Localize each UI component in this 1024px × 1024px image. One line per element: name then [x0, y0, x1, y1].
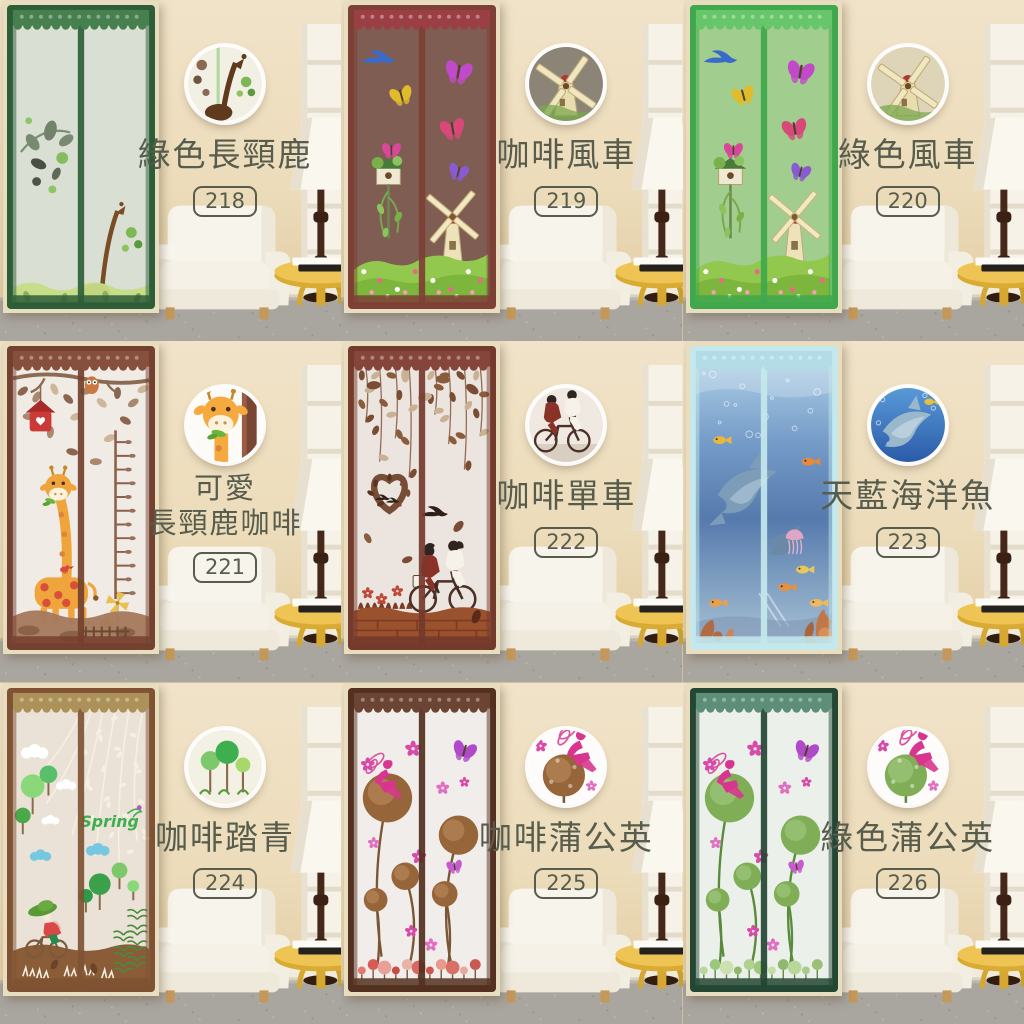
product-name-line: 可愛 — [147, 471, 302, 506]
product-thumbnail-badge — [528, 46, 604, 122]
product-code-badge: 220 — [876, 186, 940, 217]
product-code: 223 — [888, 530, 928, 554]
product-cell: 綠色長頸鹿 218 — [0, 0, 341, 341]
product-name-line: 咖啡踏青 — [155, 818, 295, 858]
product-info: 可愛長頸鹿咖啡 221 — [118, 387, 332, 583]
product-code-badge: 225 — [534, 868, 598, 899]
product-name-line: 綠色蒲公英 — [820, 818, 995, 858]
dolphin-icon — [870, 387, 946, 463]
product-code: 226 — [888, 871, 928, 895]
windmill-icon — [528, 46, 604, 122]
product-info: 咖啡風車 219 — [459, 46, 673, 217]
product-thumbnail-badge — [870, 729, 946, 805]
catalog-grid: 綠色長頸鹿 218 — [0, 0, 1024, 1024]
product-name: 咖啡風車 — [496, 135, 636, 175]
product-thumbnail-badge — [870, 387, 946, 463]
product-thumbnail-badge — [870, 46, 946, 122]
product-code: 221 — [205, 555, 245, 579]
product-info: 咖啡蒲公英 225 — [459, 729, 673, 900]
product-name-line: 長頸鹿咖啡 — [147, 506, 302, 541]
product-cell: 咖啡單車 222 — [341, 341, 682, 682]
product-cell: 綠色蒲公英 226 — [683, 683, 1024, 1024]
product-cell: Spring 咖啡踏青 224 — [0, 683, 341, 1024]
product-code: 219 — [546, 189, 586, 213]
product-name: 咖啡單車 — [496, 476, 636, 516]
dandelion-fairy-icon — [528, 729, 604, 805]
product-code: 224 — [205, 871, 245, 895]
product-name: 綠色風車 — [838, 135, 978, 175]
product-code-badge: 226 — [876, 868, 940, 899]
product-cell: 咖啡風車 219 — [341, 0, 682, 341]
product-cell: 綠色風車 220 — [683, 0, 1024, 341]
product-cell: 咖啡蒲公英 225 — [341, 683, 682, 1024]
product-code-badge: 224 — [193, 868, 257, 899]
product-code-badge: 222 — [534, 527, 598, 558]
product-thumbnail-badge — [528, 387, 604, 463]
product-info: 咖啡踏青 224 — [118, 729, 332, 900]
product-name: 綠色蒲公英 — [820, 818, 995, 858]
product-info: 咖啡單車 222 — [459, 387, 673, 558]
product-code: 218 — [205, 189, 245, 213]
product-info: 綠色長頸鹿 218 — [118, 46, 332, 217]
product-name-line: 咖啡單車 — [496, 476, 636, 516]
product-name: 咖啡蒲公英 — [479, 818, 654, 858]
bicycle-couple-icon — [528, 387, 604, 463]
product-thumbnail-badge — [187, 387, 263, 463]
cartoon-giraffe-icon — [187, 387, 263, 463]
trees-icon — [187, 729, 263, 805]
dandelion-fairy-icon — [870, 729, 946, 805]
product-name-line: 綠色長頸鹿 — [138, 135, 313, 175]
product-info: 天藍海洋魚 223 — [801, 387, 1015, 558]
product-name: 咖啡踏青 — [155, 818, 295, 858]
product-thumbnail-badge — [187, 46, 263, 122]
product-cell: 天藍海洋魚 223 — [683, 341, 1024, 682]
product-name-line: 綠色風車 — [838, 135, 978, 175]
product-code-badge: 219 — [534, 186, 598, 217]
windmill-icon — [870, 46, 946, 122]
product-name: 可愛長頸鹿咖啡 — [147, 471, 302, 541]
giraffe-silhouette-icon — [187, 46, 263, 122]
product-name: 天藍海洋魚 — [820, 476, 995, 516]
product-info: 綠色風車 220 — [801, 46, 1015, 217]
product-cell: 可愛長頸鹿咖啡 221 — [0, 341, 341, 682]
product-code-badge: 218 — [193, 186, 257, 217]
product-name-line: 咖啡風車 — [496, 135, 636, 175]
product-name-line: 咖啡蒲公英 — [479, 818, 654, 858]
product-code: 225 — [546, 871, 586, 895]
product-code-badge: 221 — [193, 552, 257, 583]
product-name: 綠色長頸鹿 — [138, 135, 313, 175]
product-name-line: 天藍海洋魚 — [820, 476, 995, 516]
product-code-badge: 223 — [876, 527, 940, 558]
product-thumbnail-badge — [528, 729, 604, 805]
product-thumbnail-badge — [187, 729, 263, 805]
product-code: 222 — [546, 530, 586, 554]
product-code: 220 — [888, 189, 928, 213]
product-info: 綠色蒲公英 226 — [801, 729, 1015, 900]
